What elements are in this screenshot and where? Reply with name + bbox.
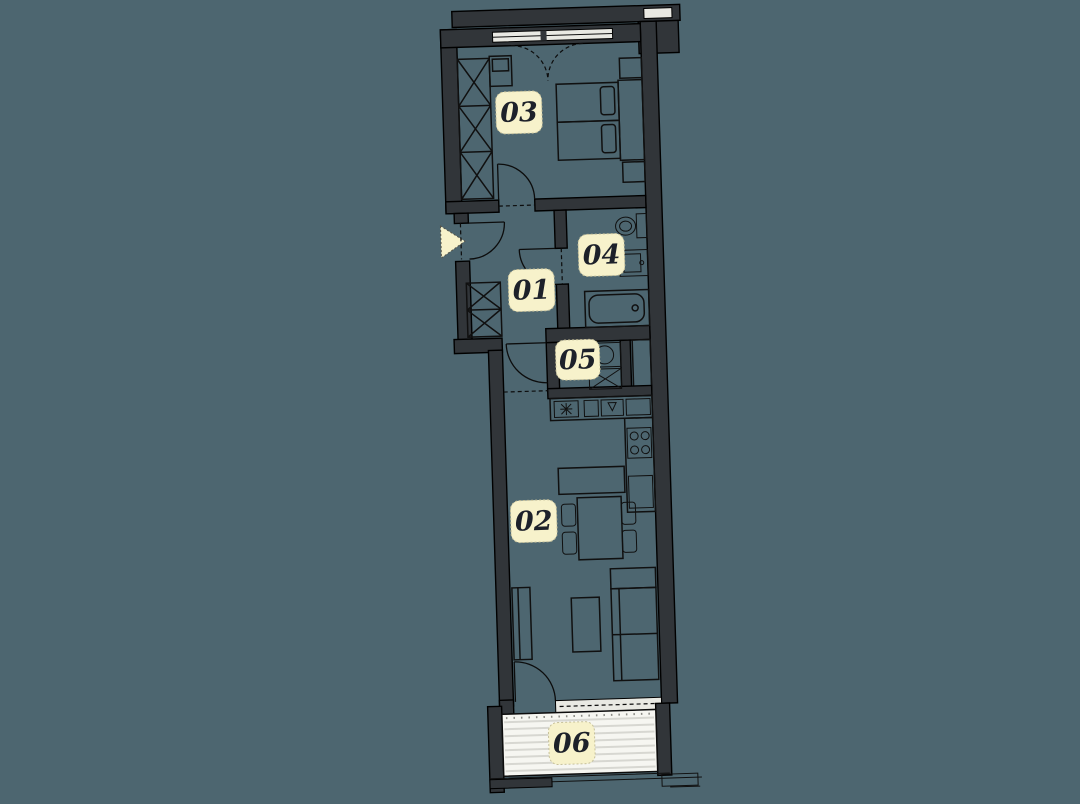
room-labels: 01 02 03 04 05 06: [495, 88, 640, 766]
sofa: [610, 567, 658, 680]
bedroom-bottom-wall-right: [535, 196, 646, 211]
nightstand-bottom: [623, 162, 646, 183]
room-label-06: 06: [548, 721, 595, 764]
top-edge-notch: [644, 8, 672, 19]
corridor-door: [506, 343, 547, 384]
bedroom-bottom-wall-left: [446, 200, 499, 214]
room-label-02: 02: [510, 499, 557, 542]
room-number-04: 04: [582, 239, 621, 271]
kitchen-sink: [554, 401, 578, 418]
coffee-table: [571, 597, 601, 652]
kitchen-island: [558, 466, 625, 494]
bedroom-door: [498, 163, 535, 206]
room-number-02: 02: [515, 506, 554, 538]
counter-end-module: [626, 398, 650, 415]
room-number-01: 01: [512, 275, 551, 307]
dining-chairs: [561, 502, 637, 554]
bathtub: [585, 289, 650, 327]
right-wall: [640, 21, 677, 703]
room-number-05: 05: [558, 344, 597, 376]
floor-plan-svg: 01 02 03 04 05 06: [0, 0, 1080, 804]
hall-left-wall-top: [454, 213, 468, 223]
nightstand-top: [619, 58, 642, 79]
living-furniture: [511, 567, 659, 701]
corridor-threshold: [504, 391, 548, 392]
bedroom-furniture: [456, 28, 645, 208]
hall-bath-wall-top: [554, 210, 567, 248]
wardrobe: [457, 58, 493, 199]
room-label-05: 05: [555, 339, 600, 380]
stove: [627, 427, 652, 458]
window-mullion: [540, 31, 546, 41]
headboard: [618, 80, 645, 161]
sideboard: [512, 587, 532, 660]
hall-left-wall-bottom: [456, 261, 473, 345]
dining-table: [577, 496, 623, 559]
duct-shaft: [632, 339, 651, 388]
hall-bath-wall-bottom: [556, 284, 569, 330]
fridge: [628, 475, 653, 508]
bedroom-shelf: [489, 56, 512, 87]
french-door-swing-right: [547, 43, 584, 80]
entrance-door: [460, 222, 505, 259]
kitchen-furniture: [550, 395, 657, 560]
double-bed: [556, 80, 644, 163]
floor-plan: 01 02 03 04 05 06: [434, 4, 704, 793]
counter-module: [584, 400, 598, 416]
room-number-03: 03: [500, 97, 539, 129]
room-label-04: 04: [578, 233, 625, 276]
living-left-wall: [488, 350, 513, 706]
room-label-03: 03: [495, 91, 542, 134]
room-number-06: 06: [553, 728, 592, 760]
faucet-module: [601, 399, 623, 416]
french-door-swing-left: [511, 45, 548, 82]
room-label-01: 01: [508, 268, 555, 311]
balcony-door: [514, 661, 555, 702]
